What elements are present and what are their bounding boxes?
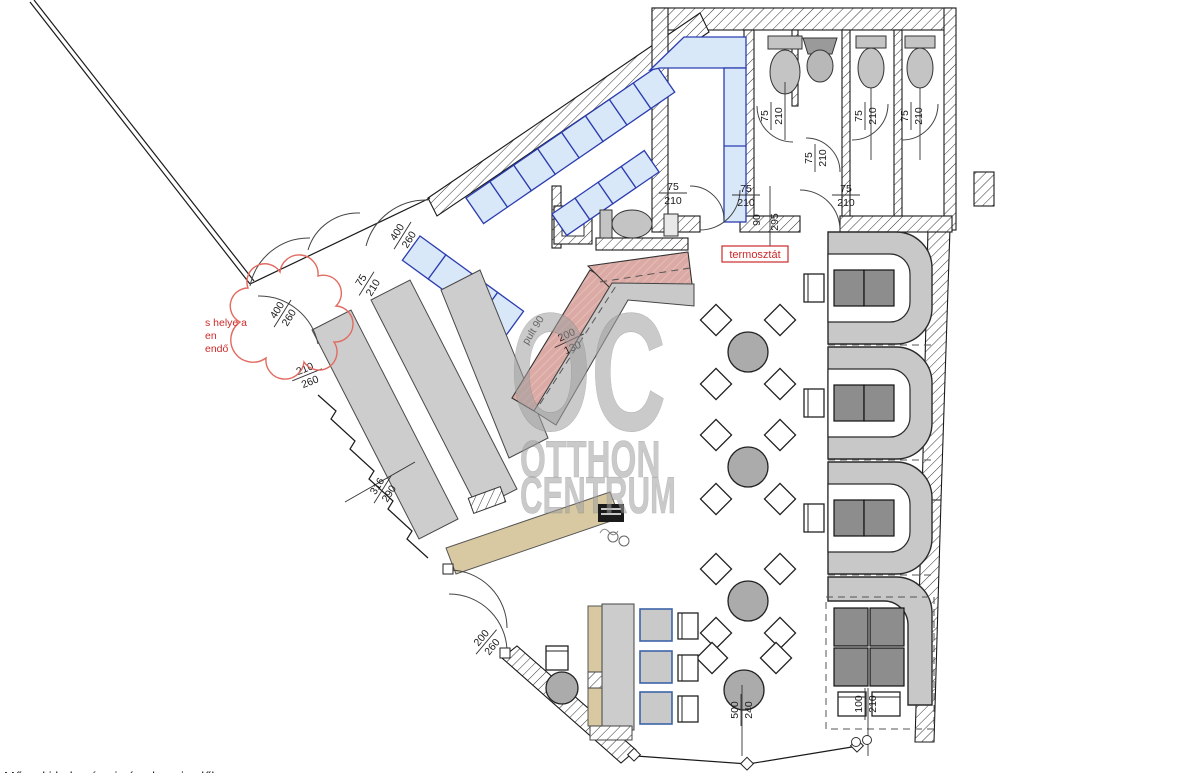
svg-text:210: 210	[737, 197, 755, 209]
floor-plan-page: 75210 75210 75210 75210 75210 75210 7521…	[0, 0, 1183, 773]
svg-text:75: 75	[667, 181, 679, 193]
thermostat-label: termosztát	[722, 246, 788, 262]
booths	[804, 232, 934, 729]
square-tables	[640, 609, 698, 724]
floor-plan-drawing: 75210 75210 75210 75210 75210 75210 7521…	[0, 0, 1183, 773]
svg-text:100: 100	[853, 695, 865, 713]
wc-stall-2	[852, 36, 888, 160]
svg-text:75: 75	[803, 152, 815, 164]
svg-text:500: 500	[729, 701, 741, 719]
svg-text:75: 75	[853, 110, 865, 122]
svg-text:240: 240	[743, 701, 755, 719]
dim-door-6: 75210	[899, 102, 925, 130]
svg-text:75: 75	[899, 110, 911, 122]
svg-text:210: 210	[664, 195, 682, 207]
svg-text:termosztát: termosztát	[729, 249, 780, 261]
red-note-line3: endő	[205, 343, 229, 355]
booth-2	[804, 347, 932, 459]
urinal	[803, 38, 837, 82]
dim-corridor-depth: 90	[751, 214, 763, 226]
svg-text:75: 75	[840, 183, 852, 195]
wc-stall-3	[902, 36, 938, 160]
round-table-2	[700, 419, 795, 514]
watermark: OC OTTHON CENTRUM	[510, 277, 676, 525]
svg-text:75: 75	[740, 183, 752, 195]
svg-text:210: 210	[817, 149, 829, 167]
round-table-1	[700, 304, 795, 399]
svg-text:210: 210	[867, 695, 879, 713]
dim-door-5: 75210	[853, 102, 879, 130]
booth-3	[804, 462, 932, 574]
svg-text:75: 75	[759, 110, 771, 122]
round-table-3	[700, 553, 795, 648]
round-table-4	[696, 642, 791, 710]
svg-text:210: 210	[867, 107, 879, 125]
dim-door-4: 75210	[803, 144, 829, 172]
svg-text:295: 295	[769, 213, 781, 231]
red-note-line1: s helye a	[205, 317, 247, 329]
dim-corridor-length: 295	[769, 213, 781, 231]
svg-text:210: 210	[837, 197, 855, 209]
red-note-line2: en	[205, 330, 217, 342]
svg-text:210: 210	[773, 107, 785, 125]
zigzag-connectors	[628, 739, 864, 770]
dim-entry-left: 400260	[264, 294, 303, 335]
bottom-caption: Műszaki helyszínrajz és alaprajz előlap	[4, 769, 229, 773]
svg-text:90: 90	[751, 214, 763, 226]
watermark-line2: CENTRUM	[520, 467, 676, 525]
booth-1	[804, 232, 932, 344]
dim-entry-left2: 210260	[288, 358, 327, 394]
svg-text:210: 210	[913, 107, 925, 125]
